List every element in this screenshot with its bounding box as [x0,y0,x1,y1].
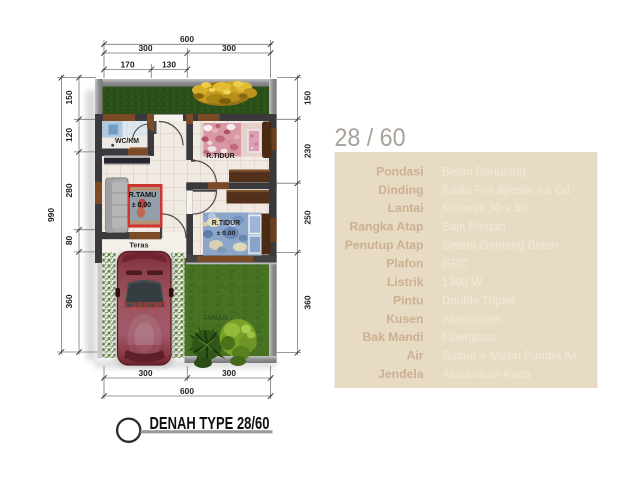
svg-text:360: 360 [303,295,313,309]
svg-text:Pondasi: Pondasi [376,164,423,178]
svg-text:Batako Pres diplester, Aci, Ca: Batako Pres diplester, Aci, Cat [442,184,571,197]
svg-text:Beton Bertulang: Beton Bertulang [442,165,526,178]
svg-text:360: 360 [64,294,74,308]
svg-text:Alumunium: Alumunium [442,313,500,326]
svg-text:Alumunium Kaca: Alumunium Kaca [442,368,531,381]
svg-text:R.TIDUR: R.TIDUR [212,220,240,227]
svg-text:Pintu: Pintu [393,293,423,307]
svg-text:150: 150 [303,91,313,105]
svg-text:GRC: GRC [442,258,468,271]
svg-text:± 0.00: ± 0.00 [132,202,152,209]
svg-text:Listrik: Listrik [387,275,424,289]
svg-text:WC/KM: WC/KM [115,138,139,145]
svg-text:300: 300 [222,43,236,53]
svg-text:120: 120 [64,128,74,142]
svg-text:990: 990 [46,208,56,222]
svg-text:170: 170 [121,59,135,69]
svg-text:600: 600 [180,386,194,396]
svg-text:230: 230 [303,144,313,158]
svg-text:Rangka Atap: Rangka Atap [349,220,423,234]
svg-text:300: 300 [139,368,153,378]
svg-text:Sumur + Mesin Pompa Air: Sumur + Mesin Pompa Air [442,350,578,363]
svg-text:300: 300 [139,43,153,53]
svg-text:R.TIDUR: R.TIDUR [206,153,234,160]
svg-text:1300 W: 1300 W [442,276,482,289]
svg-text:TAMAN: TAMAN [203,315,228,322]
svg-text:Jendela: Jendela [378,367,424,381]
svg-text:300: 300 [222,368,236,378]
svg-text:600: 600 [180,34,194,44]
svg-text:Air: Air [407,349,424,363]
svg-text:Kusen: Kusen [386,312,423,326]
svg-text:Teras: Teras [129,241,148,250]
svg-text:130: 130 [162,59,176,69]
svg-text:Baja Ringan: Baja Ringan [442,221,506,234]
svg-text:Double Triplek: Double Triplek [442,294,517,307]
svg-text:150: 150 [64,90,74,104]
svg-text:80: 80 [64,236,74,246]
svg-text:28 / 60: 28 / 60 [335,124,406,152]
svg-text:280: 280 [64,183,74,197]
svg-text:Bak Mandi: Bak Mandi [363,330,424,344]
svg-text:250: 250 [303,210,313,224]
svg-text:± 0.00: ± 0.00 [217,230,236,237]
svg-text:CARPORT: CARPORT [125,301,167,311]
svg-text:R.TAMU: R.TAMU [129,190,157,199]
svg-text:Keramik 30 x 30: Keramik 30 x 30 [442,202,527,215]
svg-text:Dinding: Dinding [378,183,423,197]
svg-text:Penutup Atap: Penutup Atap [345,238,424,252]
svg-text:Fiberglass: Fiberglass [442,331,496,344]
svg-text:Plafon: Plafon [386,257,423,271]
svg-text:DENAH TYPE 28/60: DENAH TYPE 28/60 [150,413,270,433]
svg-text:Lantai: Lantai [388,201,424,215]
svg-text:Setara Genteng Beton: Setara Genteng Beton [442,239,558,252]
